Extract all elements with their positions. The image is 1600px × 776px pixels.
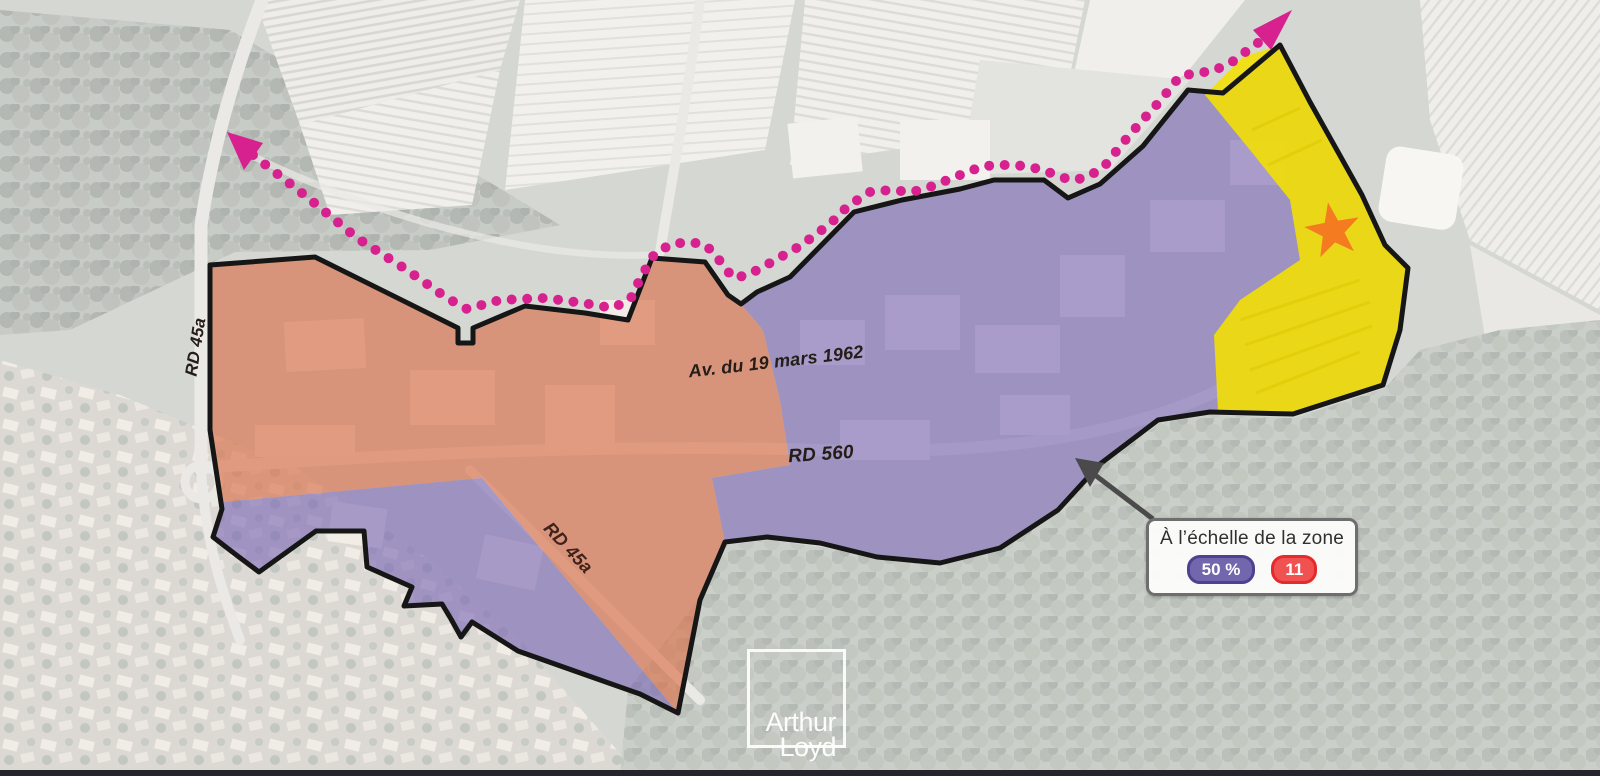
watermark-line2: Loyd [765,735,836,760]
legend-title: À l’échelle de la zone [1153,528,1351,550]
legend-badge-purple: 50 % [1187,555,1256,584]
map-canvas: RD 45a Av. du 19 mars 1962 RD 560 RD 45a… [0,0,1600,776]
watermark-logo: Arthur Loyd [747,649,846,748]
bottom-edge-bar [0,770,1600,776]
legend-badge-red: 11 [1271,555,1317,584]
legend-callout: À l’échelle de la zone 50 % 11 [1146,518,1358,596]
road-label-rd560: RD 560 [788,442,855,469]
